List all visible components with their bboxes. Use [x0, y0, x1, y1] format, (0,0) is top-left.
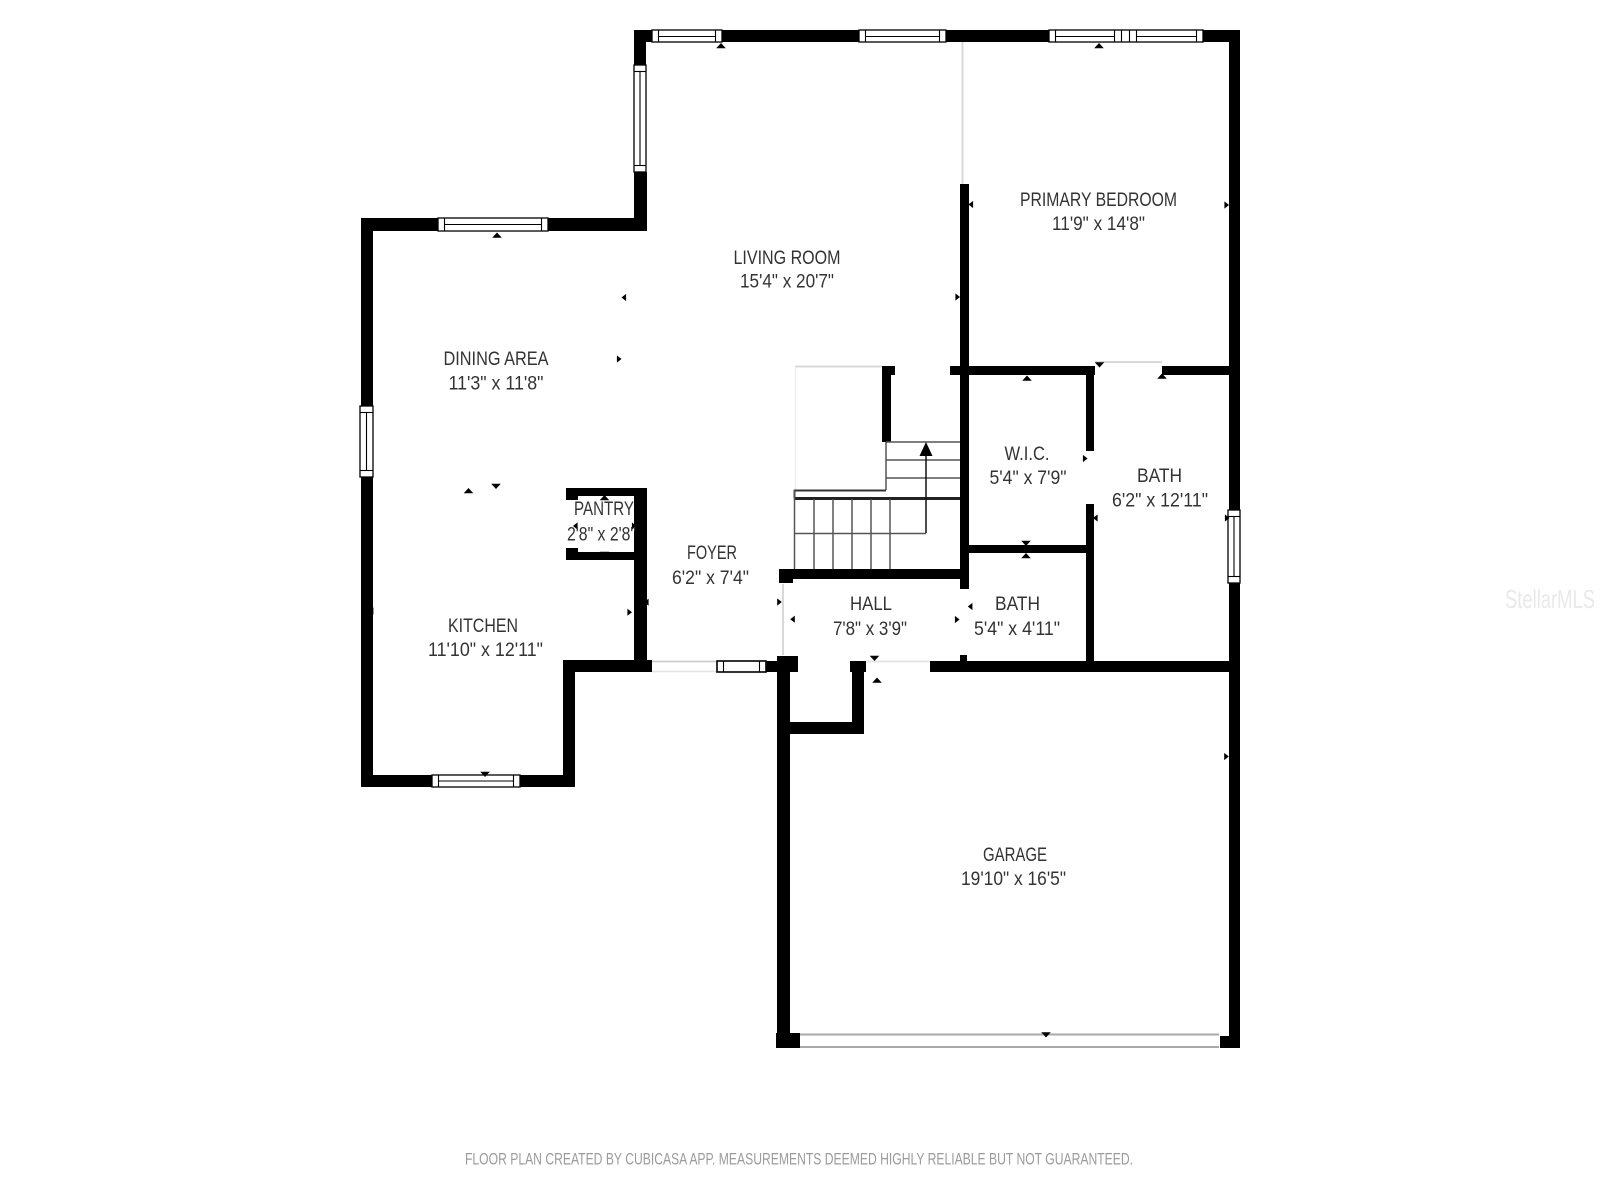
svg-text:PANTRY: PANTRY: [574, 498, 634, 520]
svg-text:BATH: BATH: [1137, 465, 1182, 487]
svg-text:DINING AREA: DINING AREA: [444, 348, 549, 370]
svg-text:11'10" x 12'11": 11'10" x 12'11": [428, 639, 543, 661]
svg-text:5'4" x 4'11": 5'4" x 4'11": [974, 618, 1060, 640]
svg-text:HALL: HALL: [850, 593, 892, 615]
svg-text:15'4" x 20'7": 15'4" x 20'7": [740, 271, 834, 293]
svg-text:2'8" x 2'8": 2'8" x 2'8": [567, 524, 636, 546]
svg-text:W.I.C.: W.I.C.: [1005, 443, 1050, 465]
svg-text:6'2" x 12'11": 6'2" x 12'11": [1112, 490, 1208, 512]
svg-text:FOYER: FOYER: [687, 542, 737, 564]
svg-text:StellarMLS: StellarMLS: [1505, 584, 1595, 614]
svg-text:PRIMARY BEDROOM: PRIMARY BEDROOM: [1020, 189, 1177, 211]
svg-text:11'9" x 14'8": 11'9" x 14'8": [1052, 213, 1145, 235]
svg-text:BATH: BATH: [995, 593, 1040, 615]
svg-text:KITCHEN: KITCHEN: [448, 615, 518, 637]
svg-text:FLOOR PLAN CREATED BY CUBICASA: FLOOR PLAN CREATED BY CUBICASA APP. MEAS…: [465, 1150, 1133, 1169]
svg-text:7'8" x 3'9": 7'8" x 3'9": [833, 618, 907, 640]
svg-text:5'4" x 7'9": 5'4" x 7'9": [990, 467, 1067, 489]
svg-text:6'2" x 7'4": 6'2" x 7'4": [672, 567, 749, 589]
svg-text:GARAGE: GARAGE: [983, 844, 1047, 866]
svg-text:19'10" x 16'5": 19'10" x 16'5": [961, 868, 1066, 890]
svg-text:11'3" x 11'8": 11'3" x 11'8": [449, 373, 544, 395]
svg-text:LIVING ROOM: LIVING ROOM: [734, 247, 841, 269]
